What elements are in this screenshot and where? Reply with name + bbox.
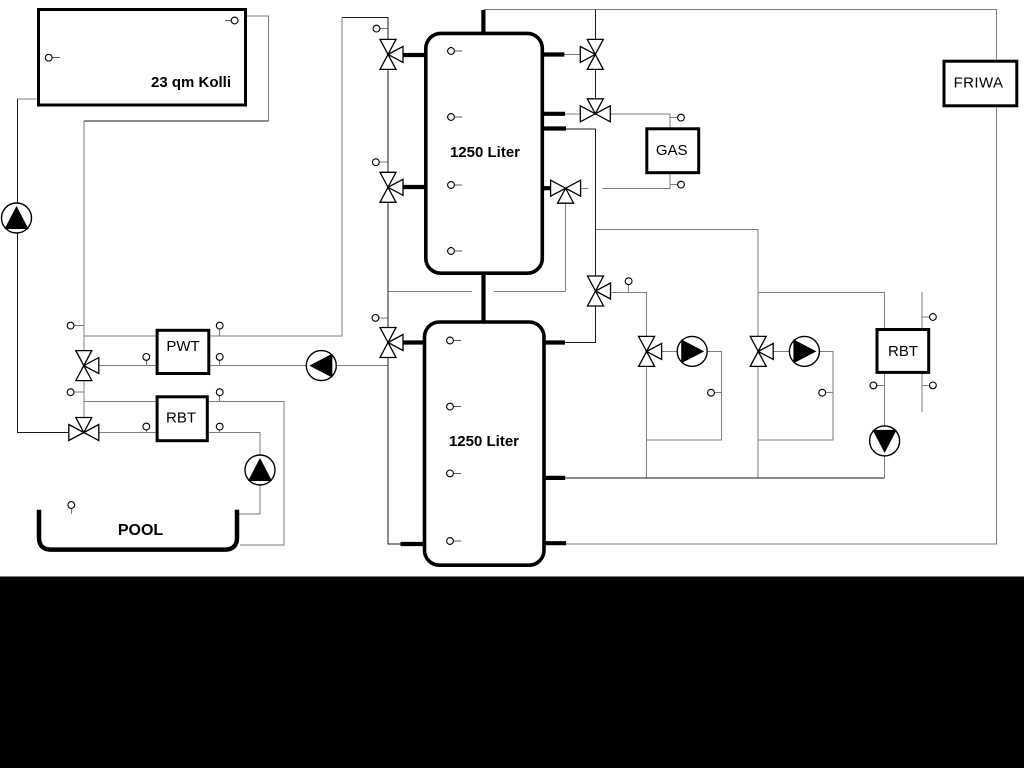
svg-text:FRIWA: FRIWA: [954, 74, 1004, 91]
svg-text:GAS: GAS: [656, 142, 688, 159]
svg-text:1250 Liter: 1250 Liter: [450, 144, 520, 161]
svg-text:1250 Liter: 1250 Liter: [449, 433, 519, 450]
svg-text:RBT: RBT: [166, 410, 196, 427]
svg-text:RBT: RBT: [888, 343, 918, 360]
svg-text:23 qm Kolli: 23 qm Kolli: [151, 74, 231, 91]
svg-text:PWT: PWT: [166, 338, 199, 355]
svg-text:POOL: POOL: [118, 522, 164, 539]
